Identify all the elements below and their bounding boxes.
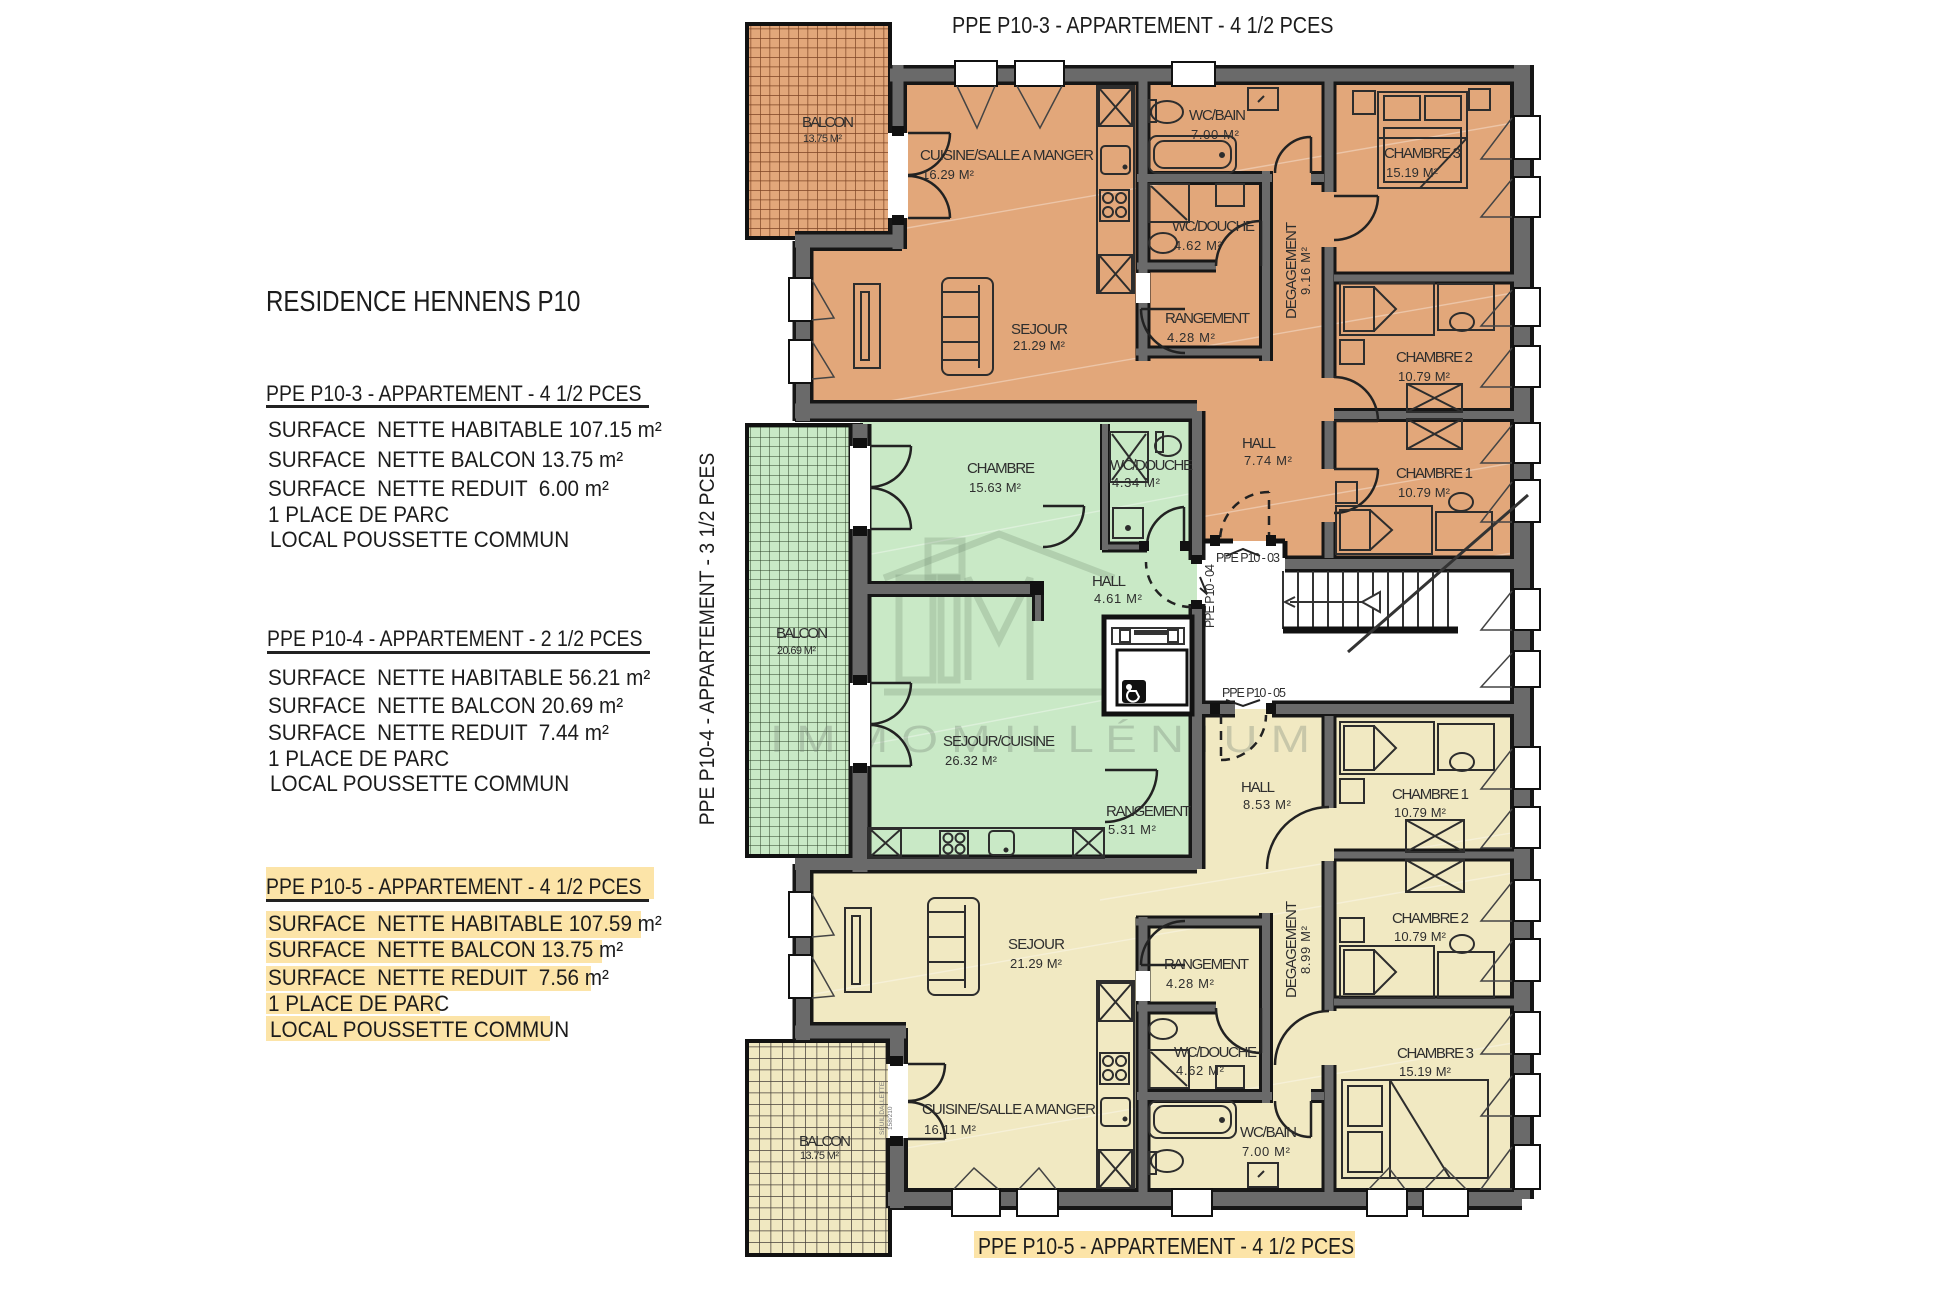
svg-text:4.28 M²: 4.28 M²	[1167, 330, 1216, 345]
svg-text:CHAMBRE 1: CHAMBRE 1	[1396, 465, 1473, 482]
svg-text:HALL: HALL	[1242, 435, 1276, 452]
svg-text:CHAMBRE 1: CHAMBRE 1	[1392, 786, 1469, 803]
svg-text:WC/BAIN: WC/BAIN	[1189, 107, 1246, 124]
svg-text:HALL: HALL	[1241, 779, 1275, 796]
svg-text:CHAMBRE 2: CHAMBRE 2	[1396, 349, 1473, 366]
svg-text:SEJOUR: SEJOUR	[1008, 936, 1065, 953]
svg-text:WC/BAIN: WC/BAIN	[1240, 1124, 1297, 1141]
svg-text:5.31 M²: 5.31 M²	[1108, 822, 1157, 837]
svg-text:15.19 M²: 15.19 M²	[1386, 165, 1439, 180]
svg-text:BALCON: BALCON	[802, 114, 854, 131]
svg-text:10.79 M²: 10.79 M²	[1398, 485, 1451, 500]
svg-text:RANGEMENT: RANGEMENT	[1106, 803, 1191, 820]
svg-text:7.00 M²: 7.00 M²	[1242, 1144, 1291, 1159]
svg-text:16.11 M²: 16.11 M²	[924, 1122, 977, 1137]
svg-text:8.53 M²: 8.53 M²	[1243, 797, 1292, 812]
svg-text:7.74 M²: 7.74 M²	[1244, 453, 1293, 468]
svg-text:9.16 M²: 9.16 M²	[1298, 246, 1313, 295]
svg-text:10.79 M²: 10.79 M²	[1394, 805, 1447, 820]
svg-text:7.00 M²: 7.00 M²	[1191, 127, 1240, 142]
svg-text:HALL: HALL	[1092, 573, 1126, 590]
svg-text:10.79 M²: 10.79 M²	[1394, 929, 1447, 944]
svg-text:CHAMBRE 3: CHAMBRE 3	[1384, 145, 1461, 162]
svg-text:WC/DOUCHE: WC/DOUCHE	[1174, 1044, 1257, 1061]
svg-text:8.99 M²: 8.99 M²	[1298, 925, 1313, 974]
svg-text:SEJOUR: SEJOUR	[1011, 321, 1068, 338]
svg-text:PPE P10 - 04: PPE P10 - 04	[1203, 564, 1217, 628]
svg-text:158/210: 158/210	[887, 1106, 894, 1130]
svg-text:13.75 M²: 13.75 M²	[800, 1150, 839, 1162]
svg-text:4.62 M²: 4.62 M²	[1176, 1063, 1225, 1078]
svg-text:CHAMBRE: CHAMBRE	[967, 460, 1035, 477]
svg-text:21.29 M²: 21.29 M²	[1010, 956, 1063, 971]
svg-text:21.29 M²: 21.29 M²	[1013, 338, 1066, 353]
svg-text:WC/DOUCHE: WC/DOUCHE	[1110, 457, 1193, 474]
svg-text:15.63 M²: 15.63 M²	[969, 480, 1022, 495]
svg-text:SEJOUR/CUISINE: SEJOUR/CUISINE	[943, 733, 1055, 750]
svg-text:4.34 M²: 4.34 M²	[1112, 475, 1161, 490]
svg-text:20.69 M²: 20.69 M²	[777, 645, 816, 657]
svg-text:16.29 M²: 16.29 M²	[922, 167, 975, 182]
svg-text:RANGEMENT: RANGEMENT	[1164, 956, 1249, 973]
svg-text:4.62 M²: 4.62 M²	[1174, 238, 1223, 253]
svg-text:BALCON: BALCON	[799, 1133, 851, 1150]
svg-text:PPE P10 - 05: PPE P10 - 05	[1222, 686, 1286, 700]
svg-text:CHAMBRE 3: CHAMBRE 3	[1397, 1045, 1474, 1062]
svg-text:SEUIL DALLETTE: SEUIL DALLETTE	[879, 1081, 886, 1135]
svg-text:CUISINE/SALLE A MANGER: CUISINE/SALLE A MANGER	[920, 147, 1094, 164]
svg-text:WC/DOUCHE: WC/DOUCHE	[1172, 218, 1255, 235]
svg-text:13.75 M²: 13.75 M²	[803, 133, 842, 145]
svg-text:CUISINE/SALLE A MANGER: CUISINE/SALLE A MANGER	[922, 1101, 1096, 1118]
svg-text:4.61 M²: 4.61 M²	[1094, 591, 1143, 606]
svg-text:PPE P10 - 03: PPE P10 - 03	[1216, 551, 1280, 565]
svg-text:RANGEMENT: RANGEMENT	[1165, 310, 1250, 327]
svg-text:CHAMBRE 2: CHAMBRE 2	[1392, 910, 1469, 927]
svg-text:BALCON: BALCON	[776, 625, 828, 642]
svg-text:15.19 M²: 15.19 M²	[1399, 1064, 1452, 1079]
svg-text:4.28 M²: 4.28 M²	[1166, 976, 1215, 991]
svg-text:26.32 M²: 26.32 M²	[945, 753, 998, 768]
svg-text:10.79 M²: 10.79 M²	[1398, 369, 1451, 384]
